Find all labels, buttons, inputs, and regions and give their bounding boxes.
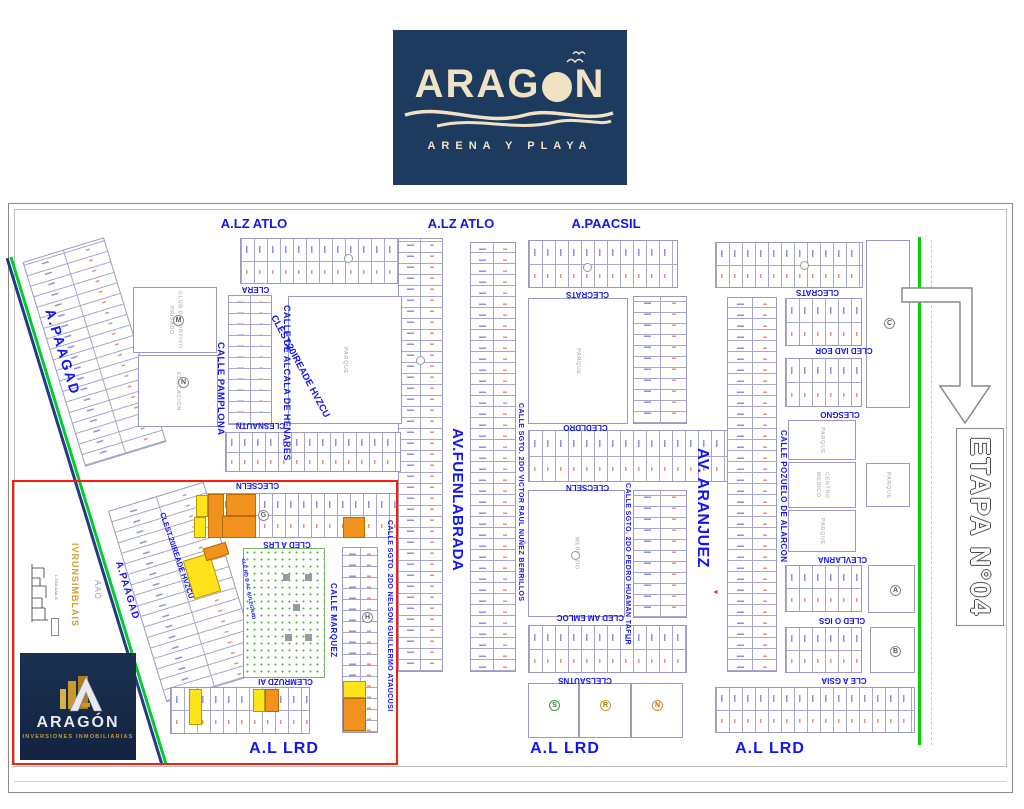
- street-label-clevlarna: CLEVLARNA: [815, 555, 870, 564]
- block-badge-a: A: [890, 585, 901, 596]
- block-label: PARQUE: [818, 427, 826, 454]
- brand-title-post: N: [574, 64, 605, 104]
- lot-block: [785, 298, 862, 346]
- street-label-clesgno: CLESGNO: [815, 410, 865, 419]
- block-label: CENTRO MEDICO: [814, 463, 831, 507]
- street-label-clecrats-mid: CLECRATS: [560, 290, 615, 299]
- street-label-clesnautn: CLESNAUTN: [233, 421, 288, 430]
- street-label-clera: CLERA: [233, 285, 278, 294]
- manzana-ring: [583, 263, 592, 272]
- block-label: PARQUE: [574, 348, 582, 375]
- lot-block: [528, 240, 678, 288]
- block-label: PARQUE: [341, 347, 349, 374]
- street-label-victor: CALLE SGTO. 2DO VICTOR RAUL NUÑEZ BERRIL…: [517, 403, 524, 575]
- street-label-cled-am-emloc: CLED AM EMLOC: [562, 613, 624, 622]
- manzana-ring: [800, 261, 809, 270]
- block-badge-n: N: [178, 377, 189, 388]
- stage-label-box: ETAPA N°04: [956, 428, 1004, 626]
- street-label-clelsautns: CLELSAUTNS: [556, 676, 614, 685]
- avenue-label-al-lrd-3: A.L LRD: [720, 740, 820, 758]
- corner-emblem-icon: [46, 673, 110, 713]
- avenue-label-alz-atlo-2: A.LZ ATLO: [411, 216, 511, 231]
- manzana-ring: [571, 551, 580, 560]
- brand-title-pre: ARAG: [415, 64, 541, 104]
- lot-block: [225, 432, 401, 472]
- street-label-pozuelo: CALLE POZUELO DE ALARCON: [779, 430, 788, 545]
- street-label-cle-a-gsia: CLE A GSIA: [817, 676, 871, 685]
- stage-arrow: [898, 282, 1008, 432]
- street-label-cledldro: CLEDLDRO: [558, 423, 613, 432]
- sun-icon: [542, 72, 572, 102]
- block-badge-n2: N: [652, 700, 663, 711]
- block-educacion: EDUCACIÓN: [138, 355, 218, 427]
- street-label-cled-iad-eor: CLED IAD EOR: [815, 346, 873, 355]
- manzana-ring: [416, 356, 425, 365]
- lot-block: [785, 358, 862, 407]
- sheet-bottom-rule: [14, 781, 1007, 782]
- block-badge-s: S: [549, 700, 560, 711]
- block-parque-1: PARQUE: [288, 296, 402, 424]
- street-label-cled-o-igs: CLED O IGS: [815, 616, 869, 625]
- block-badge-r: R: [600, 700, 611, 711]
- street-label-clecseln-mid: CLECSELN: [560, 483, 615, 492]
- brand-tagline: ARENA Y PLAYA: [427, 140, 592, 152]
- block-parque-right-2: PARQUE: [788, 510, 856, 552]
- block-label: PARQUE: [818, 518, 826, 545]
- lot-block: [633, 296, 687, 424]
- avenue-label-fuenlabrada: AV.FUENLABRADA: [449, 428, 466, 568]
- lot-block: [727, 297, 777, 672]
- block-parque-far-right: PARQUE: [866, 463, 910, 507]
- street-label-pedro: CALLE SGTO. 2DO PEDRO HUAMAN TAFUR: [624, 483, 631, 625]
- lot-block: [528, 625, 687, 673]
- block-badge-m: M: [173, 315, 184, 326]
- brand-logo-corner: ARAGÓN INVERSIONES INMOBILIARIAS: [20, 653, 136, 760]
- lot-block: [398, 238, 443, 672]
- avenue-label-alz-atlo-1: A.LZ ATLO: [204, 216, 304, 231]
- stage-label: ETAPA N°04: [964, 437, 996, 617]
- lot-block: [633, 490, 687, 618]
- waves-icon: [403, 106, 617, 132]
- lot-block: [470, 242, 516, 672]
- corner-brand-title: ARAGÓN: [36, 714, 119, 732]
- lot-block: [715, 242, 863, 288]
- site-plan-poster: ARAGN ARENA Y PLAYA CL: [0, 0, 1024, 809]
- block-badge-b: B: [890, 646, 901, 657]
- manzana-ring: [344, 254, 353, 263]
- block-centro-medico: CENTRO MEDICO: [788, 462, 856, 508]
- lot-block: [785, 627, 862, 673]
- avenue-label-al-lrd-2: A.L LRD: [515, 740, 615, 758]
- lot-block: [715, 687, 915, 733]
- street-label-clecrats-right: CLECRATS: [790, 288, 845, 297]
- location-marker: ◄: [712, 589, 719, 596]
- block-parque-2: PARQUE: [528, 298, 628, 424]
- block-parque-right-1: PARQUE: [788, 420, 856, 460]
- avenue-label-aranjuez: AV. ARANJUEZ: [693, 430, 711, 585]
- corner-brand-tagline: INVERSIONES INMOBILIARIAS: [23, 734, 134, 740]
- block-label: PARQUE: [884, 472, 892, 499]
- street-label-pamplona: CALLE PAMPLONA: [215, 330, 226, 448]
- lot-block: [785, 565, 862, 612]
- brand-logo-header: ARAGN ARENA Y PLAYA: [393, 30, 627, 185]
- birds-icon: [547, 48, 587, 66]
- block-badge-c: C: [884, 318, 895, 329]
- avenue-label-paacsil: A.PAACSIL: [556, 216, 656, 231]
- brand-title: ARAGN: [415, 64, 606, 104]
